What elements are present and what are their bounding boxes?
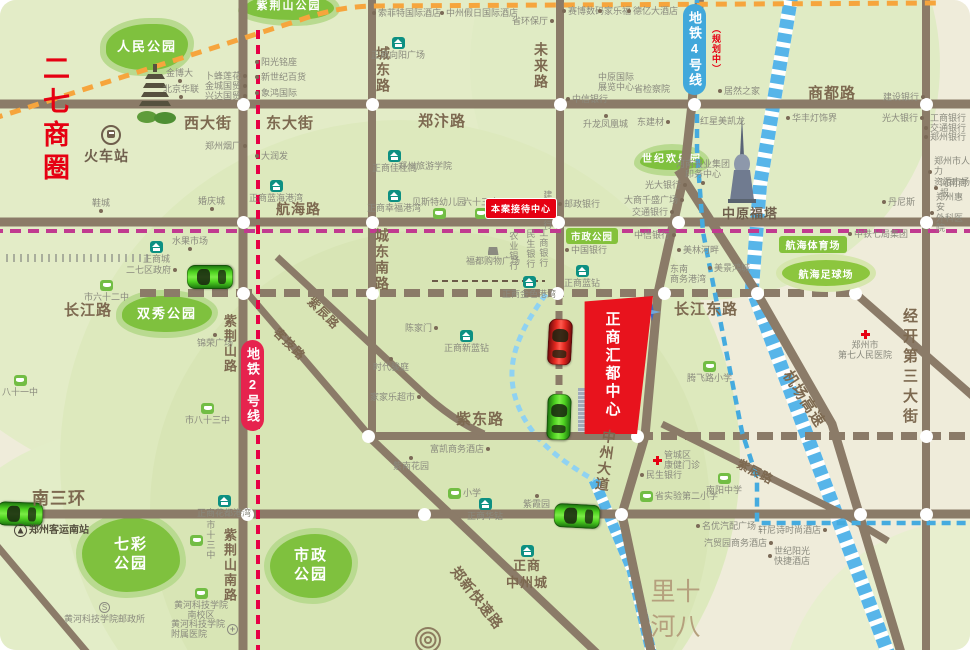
- poi: 索菲特国际酒店: [372, 8, 441, 18]
- poi: 正商新蓝钻: [444, 330, 489, 353]
- poi-dot: [255, 91, 259, 95]
- poi: 建设银行: [883, 92, 925, 102]
- poi-label: 卜蜂莲花: [205, 71, 241, 81]
- poi-label: 中信银行: [572, 94, 608, 104]
- poi-dot: [604, 114, 608, 118]
- reception-center-badge: 本案接待中心: [486, 199, 556, 218]
- poi-label: 德亿大酒店: [633, 6, 678, 16]
- poi-dot: [598, 9, 602, 13]
- bus-icon: [14, 524, 27, 537]
- poi-label: 市八十三中: [185, 415, 230, 425]
- business-circle-label: 二七商圈: [40, 54, 67, 186]
- poi: 东建材: [637, 117, 670, 127]
- poi: 紫霞园: [523, 494, 550, 509]
- poi: 腾飞路小学: [687, 361, 732, 383]
- poi: 河南报业集团 印务中心: [676, 159, 730, 185]
- poi: 华丰灯饰界: [786, 113, 837, 123]
- poi-dot: [566, 97, 570, 101]
- school-icon: [433, 208, 446, 219]
- poi: 郑州惠安 外科医院: [930, 192, 970, 233]
- poi: 东南 商务港湾: [670, 264, 706, 285]
- poi-label: 福都购物广场: [466, 256, 520, 266]
- poi-label: 家家乐超市: [370, 392, 415, 402]
- river-area-label: 十八里河: [648, 578, 698, 650]
- poi-label: 名优汽配广场: [702, 521, 756, 531]
- poi: 市十三中: [190, 520, 215, 560]
- poi-dot: [255, 154, 259, 158]
- poi: 正商蓝海港湾: [249, 180, 303, 203]
- poi-dot: [389, 357, 393, 361]
- poi-label: 大商千盛广场: [624, 195, 678, 205]
- poi-label: 省检察院: [634, 84, 670, 94]
- poi: 二七区政府: [126, 265, 177, 275]
- poi: 陈家门: [405, 323, 438, 333]
- poi-dot: [930, 211, 934, 215]
- poi-label: 邮政银行: [564, 199, 600, 209]
- poi-label: 正商 中州城: [506, 558, 548, 592]
- poi-label: 贝斯特幼儿园: [412, 197, 466, 207]
- poi-dot: [769, 541, 773, 545]
- poi-dot: [718, 89, 722, 93]
- poi: 管城区 康健门诊: [653, 450, 700, 471]
- poi-label: 新世纪百货: [261, 72, 306, 82]
- poi-label: 陈家门: [405, 323, 432, 333]
- poi-label: 郑州客运南站: [29, 525, 89, 537]
- poi: 美景鸿城: [708, 263, 750, 273]
- poi: 省实验第二小学: [640, 491, 718, 502]
- school-icon: [640, 491, 653, 502]
- school-icon: [100, 280, 113, 291]
- poi-label: 正商新蓝钻: [444, 343, 489, 353]
- poi-dot: [708, 266, 712, 270]
- poi: 时代骏庭: [373, 357, 409, 372]
- poi: 家家乐超市: [370, 392, 421, 402]
- poi-label: 建设银行: [883, 92, 919, 102]
- map-canvas: 人民公园紫荆山公园双秀公园七彩 公园市政 公园世纪欢乐园: [0, 0, 970, 650]
- poi: 锦荣广场: [197, 333, 233, 348]
- poi-dot: [558, 202, 562, 206]
- poi-dot: [565, 248, 569, 252]
- poi: 邮政银行: [558, 199, 600, 209]
- poi-dot: [486, 447, 490, 451]
- poi: 轩尼诗时尚酒店: [758, 525, 827, 535]
- poi: 新世纪百货: [255, 72, 306, 82]
- poi-label: 美景鸿城: [714, 263, 750, 273]
- poi-dot: [696, 524, 700, 528]
- poi-label: 兴达国贸: [205, 91, 241, 101]
- poi-label: 郑州银行: [930, 132, 966, 142]
- poi-label: 腾飞路小学: [687, 373, 732, 383]
- poi: 婚庆城: [198, 196, 225, 211]
- poi-label: 郑州旅游学院: [398, 161, 452, 171]
- poi-dot: [243, 84, 247, 88]
- poi-label: 中信银行: [634, 230, 670, 240]
- poi-label: 水果市场: [172, 236, 208, 246]
- poi-label: 象鸿国际: [261, 88, 297, 98]
- poi-label: 中铁七局集团: [854, 229, 908, 239]
- school-icon: [190, 535, 203, 546]
- poi: 正商蓝钻: [564, 265, 600, 288]
- poi-label: 汽贸园商务酒店: [704, 538, 767, 548]
- zs-icon: [388, 190, 401, 202]
- postal-icon: [99, 602, 110, 613]
- poi-label: 正商金色港湾: [502, 289, 556, 299]
- poi: 水果市场: [172, 236, 208, 251]
- poi: 正商花都港湾: [197, 495, 251, 518]
- poi: 金博大: [166, 68, 193, 83]
- metro-line4-note: （规划中）: [710, 24, 723, 74]
- poi: 中原国际 展览中心: [598, 72, 634, 93]
- poi-dot: [243, 74, 247, 78]
- poi-dot: [243, 94, 247, 98]
- poi-label: 民生银行: [525, 229, 535, 269]
- poi: 中国银行: [565, 245, 607, 255]
- poi: 大润发: [255, 151, 288, 161]
- poi-label: 黄河科技学院 南校区: [174, 600, 228, 621]
- poi: 省检察院: [634, 84, 670, 94]
- oplus-icon: [227, 624, 238, 635]
- poi-dot: [434, 326, 438, 330]
- poi: 黄河科技学院邮政所: [64, 602, 145, 624]
- zs-icon: [392, 37, 405, 49]
- poi-label: 正商城: [143, 254, 170, 264]
- poi-label: 省环保厅: [512, 16, 548, 26]
- poi: 北京华联: [163, 84, 199, 99]
- poi: 正商 中州城: [506, 545, 548, 592]
- poi-label: 世纪阳光 快捷酒店: [774, 546, 810, 567]
- poi-labels-layer: 金博大北京华联卜蜂莲花金城国贸兴达国贸阳光铭座新世纪百货象鸿国际郑州烟厂大润发鞋…: [0, 0, 970, 650]
- poi-dot: [562, 9, 566, 13]
- poi-dot: [210, 207, 214, 211]
- poi-dot: [848, 232, 852, 236]
- zs-icon: [576, 265, 589, 277]
- poi-dot: [768, 554, 772, 558]
- poi-label: 紫南花园: [393, 461, 429, 471]
- poi: 德亿大酒店: [627, 6, 678, 16]
- poi-dot: [934, 186, 938, 190]
- poi-dot: [179, 95, 183, 99]
- poi-label: 二七区政府: [126, 265, 171, 275]
- poi-dot: [409, 456, 413, 460]
- poi: 中州假日国际酒店: [440, 8, 518, 18]
- poi-label: 郑州烟厂: [205, 141, 241, 151]
- poi-dot: [920, 116, 924, 120]
- poi-label: 东建材: [637, 117, 664, 127]
- school-icon: [703, 361, 716, 372]
- poi: 中信银行: [566, 94, 608, 104]
- poi-label: 郑州惠安 外科医院: [936, 192, 970, 233]
- poi-dot: [672, 233, 676, 237]
- poi-dot: [627, 9, 631, 13]
- poi: 市六十二中: [84, 280, 129, 302]
- poi-label: 市十三中: [205, 520, 215, 560]
- poi-dot: [640, 473, 644, 477]
- poi-label: 东南 商务港湾: [670, 264, 706, 285]
- poi-label: 锦荣广场: [197, 338, 233, 348]
- poi: 升龙凤凰城: [583, 114, 628, 129]
- poi: 民生银行: [525, 229, 535, 269]
- poi-label: 正商蓝海港湾: [249, 193, 303, 203]
- metro-line4-badge: 地铁4号线: [683, 4, 706, 95]
- poi: 郑州客运南站: [14, 524, 89, 537]
- poi-dot: [921, 95, 925, 99]
- poi: 金城国贸: [205, 81, 247, 91]
- poi: 正商华钻: [467, 498, 503, 521]
- poi-dot: [243, 144, 247, 148]
- poi: 市八十三中: [185, 403, 230, 425]
- poi: 交通银行: [632, 207, 674, 217]
- poi-label: 省实验第二小学: [655, 491, 718, 501]
- poi-label: 索菲特国际酒店: [378, 8, 441, 18]
- poi-dot: [670, 210, 674, 214]
- poi: 富凯商务酒店: [430, 444, 490, 454]
- poi-label: 正商蓝钻: [564, 278, 600, 288]
- poi-dot: [255, 60, 259, 64]
- poi: 鞋城: [92, 198, 110, 213]
- poi: 兴达国贸: [205, 91, 247, 101]
- poi-label: 郑州市 第七人民医院: [838, 340, 892, 361]
- poi: 中铁七局集团: [848, 229, 908, 239]
- zs-icon: [479, 498, 492, 510]
- poi: 省环保厅: [512, 16, 554, 26]
- poi-label: 时代骏庭: [373, 362, 409, 372]
- poi-dot: [823, 528, 827, 532]
- poi-label: 居然之家: [724, 86, 760, 96]
- poi: 紫南花园: [393, 456, 429, 471]
- poi-dot: [372, 11, 376, 15]
- poi-label: 金城国贸: [205, 81, 241, 91]
- poi: 美林河畔: [677, 245, 719, 255]
- poi-dot: [924, 126, 928, 130]
- school-icon: [14, 375, 27, 386]
- poi-dot: [701, 181, 705, 185]
- poi: 工商银行: [930, 113, 966, 123]
- poi-dot: [188, 247, 192, 251]
- poi-label: 轩尼诗时尚酒店: [758, 525, 821, 535]
- poi-label: 光大银行: [882, 113, 918, 123]
- poi-dot: [550, 19, 554, 23]
- poi-label: 工商银行: [538, 228, 548, 268]
- basket-icon: [488, 247, 499, 255]
- poi: 郑州银行: [924, 132, 966, 142]
- poi: 郑州市 第七人民医院: [838, 330, 892, 361]
- poi-dot: [99, 209, 103, 213]
- poi: 正商向阳广场: [371, 37, 425, 60]
- poi-dot: [882, 200, 886, 204]
- poi: 郑州旅游学院: [398, 161, 452, 171]
- poi-label: 八十一中: [2, 387, 38, 397]
- poi-label: 民生银行: [646, 470, 682, 480]
- poi-dot: [666, 120, 670, 124]
- zs-icon: [460, 330, 473, 342]
- poi: 阳光铭座: [255, 57, 297, 67]
- cross-icon: [653, 456, 662, 465]
- poi: 郑州烟厂: [205, 141, 247, 151]
- poi: 黄河科技学院 南校区: [174, 588, 228, 621]
- school-icon: [448, 488, 461, 499]
- poi: 八十一中: [2, 375, 38, 397]
- poi-dot: [677, 248, 681, 252]
- poi-dot: [178, 79, 182, 83]
- poi-label: 丹尼斯: [888, 197, 915, 207]
- poi-label: 华丰灯饰界: [792, 113, 837, 123]
- poi-dot: [786, 116, 790, 120]
- cross-icon: [861, 330, 870, 339]
- poi: 红星美凯龙: [700, 116, 745, 126]
- school-icon: [718, 473, 731, 484]
- poi-label: 婚庆城: [198, 196, 225, 206]
- poi-label: 大润发: [261, 151, 288, 161]
- poi-label: 红星美凯龙: [700, 116, 745, 126]
- poi: 象鸿国际: [255, 88, 297, 98]
- poi: 名优汽配广场: [696, 521, 756, 531]
- poi-dot: [213, 333, 217, 337]
- zs-icon: [523, 276, 536, 288]
- poi: 民生银行: [640, 470, 682, 480]
- zs-icon: [521, 545, 534, 557]
- poi-label: 管城区 康健门诊: [664, 450, 700, 471]
- poi-dot: [928, 170, 932, 174]
- poi-dot: [173, 268, 177, 272]
- school-icon: [201, 403, 214, 414]
- poi-label: 鞋城: [92, 198, 110, 208]
- poi-label: 交通银行: [632, 207, 668, 217]
- poi: 正商金色港湾: [502, 276, 556, 299]
- poi-label: 工商银行: [930, 113, 966, 123]
- poi-label: 中州假日国际酒店: [446, 8, 518, 18]
- poi: 中信银行: [634, 230, 676, 240]
- poi-dot: [680, 198, 684, 202]
- poi: 正商城: [143, 241, 170, 264]
- poi: 光大银行: [882, 113, 924, 123]
- zs-icon: [270, 180, 283, 192]
- poi: 大商千盛广场: [624, 195, 684, 205]
- poi-label: 富凯商务酒店: [430, 444, 484, 454]
- poi-label: 升龙凤凰城: [583, 119, 628, 129]
- poi-dot: [535, 494, 539, 498]
- poi-dot: [417, 395, 421, 399]
- poi-dot: [440, 11, 444, 15]
- poi-label: 市六十二中: [84, 292, 129, 302]
- zs-icon: [150, 241, 163, 253]
- poi-label: 正商华钻: [467, 511, 503, 521]
- poi: 福都购物广场: [466, 243, 520, 266]
- metro-line2-badge: 地铁2号线: [241, 340, 264, 431]
- poi-label: 美林河畔: [683, 245, 719, 255]
- poi-label: 黄河科技学院邮政所: [64, 614, 145, 624]
- poi-label: 中国银行: [571, 245, 607, 255]
- zs-icon: [218, 495, 231, 507]
- poi: 丹尼斯: [882, 197, 915, 207]
- poi: 居然之家: [718, 86, 760, 96]
- poi-label: 正商向阳广场: [371, 50, 425, 60]
- poi: 世纪阳光 快捷酒店: [768, 546, 810, 567]
- poi-label: 金博大: [166, 68, 193, 78]
- poi: 贝斯特幼儿园: [412, 197, 466, 219]
- poi-label: 中原国际 展览中心: [598, 72, 634, 93]
- poi-label: 黄河科技学院 附属医院: [171, 619, 225, 640]
- poi-dot: [255, 75, 259, 79]
- poi-label: 正商花都港湾: [197, 508, 251, 518]
- poi-label: 阳光铭座: [261, 57, 297, 67]
- poi-label: 北京华联: [163, 84, 199, 94]
- poi-dot: [924, 135, 928, 139]
- poi: 汽贸园商务酒店: [704, 538, 773, 548]
- poi: 卜蜂莲花: [205, 71, 247, 81]
- poi-label: 紫霞园: [523, 499, 550, 509]
- poi: 工商银行: [538, 228, 548, 268]
- school-icon: [195, 588, 208, 599]
- poi-label: 河南报业集团 印务中心: [676, 159, 730, 180]
- poi: 黄河科技学院 附属医院: [171, 619, 238, 640]
